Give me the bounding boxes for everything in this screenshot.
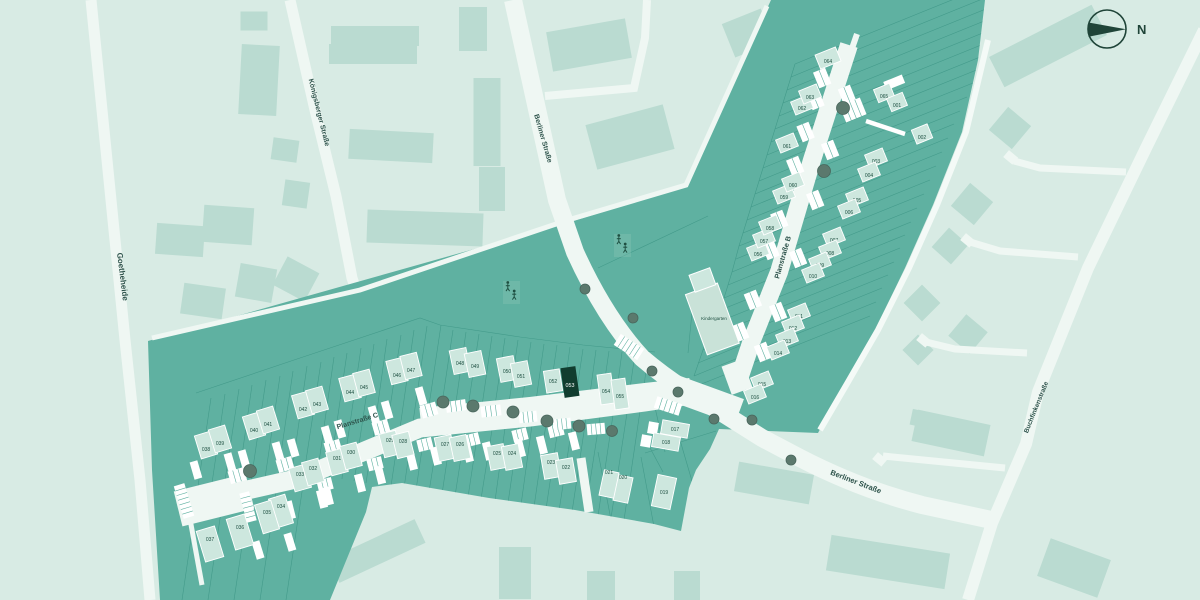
svg-text:042: 042 <box>299 407 308 413</box>
svg-text:022: 022 <box>562 465 571 471</box>
svg-text:014: 014 <box>774 351 783 357</box>
svg-text:027: 027 <box>441 442 450 448</box>
svg-text:046: 046 <box>393 373 402 379</box>
svg-text:020: 020 <box>619 475 628 481</box>
svg-text:053: 053 <box>566 383 575 389</box>
svg-text:028: 028 <box>399 439 408 445</box>
svg-text:043: 043 <box>313 402 322 408</box>
svg-text:025: 025 <box>493 451 502 457</box>
svg-text:039: 039 <box>216 441 225 447</box>
svg-text:023: 023 <box>547 460 556 466</box>
svg-text:045: 045 <box>360 385 369 391</box>
svg-text:038: 038 <box>202 447 211 453</box>
svg-text:026: 026 <box>456 442 465 448</box>
svg-text:Kindergarten: Kindergarten <box>701 316 727 321</box>
svg-text:047: 047 <box>407 368 416 374</box>
svg-text:057: 057 <box>760 239 769 245</box>
svg-text:063: 063 <box>806 95 815 101</box>
svg-text:054: 054 <box>602 389 611 395</box>
svg-text:058: 058 <box>766 226 775 232</box>
svg-text:037: 037 <box>206 537 215 543</box>
svg-text:030: 030 <box>347 450 356 456</box>
svg-text:061: 061 <box>783 144 792 150</box>
svg-text:010: 010 <box>809 274 818 280</box>
svg-text:N: N <box>1137 22 1146 37</box>
svg-text:006: 006 <box>845 210 854 216</box>
svg-text:035: 035 <box>263 510 272 516</box>
svg-text:051: 051 <box>517 374 526 380</box>
svg-text:049: 049 <box>471 364 480 370</box>
svg-text:052: 052 <box>549 379 558 385</box>
svg-text:031: 031 <box>333 456 342 462</box>
svg-text:059: 059 <box>780 195 789 201</box>
svg-text:060: 060 <box>789 183 798 189</box>
svg-text:041: 041 <box>264 422 273 428</box>
svg-text:017: 017 <box>671 427 680 433</box>
svg-text:034: 034 <box>277 504 286 510</box>
svg-text:040: 040 <box>250 428 259 434</box>
svg-text:004: 004 <box>865 173 874 179</box>
svg-text:018: 018 <box>662 440 671 446</box>
svg-text:056: 056 <box>754 252 763 258</box>
svg-text:019: 019 <box>660 490 669 496</box>
svg-text:024: 024 <box>508 451 517 457</box>
svg-text:055: 055 <box>616 394 625 400</box>
svg-text:062: 062 <box>798 106 807 112</box>
svg-text:050: 050 <box>503 369 512 375</box>
svg-text:036: 036 <box>236 525 245 531</box>
svg-text:064: 064 <box>824 59 833 65</box>
svg-text:033: 033 <box>296 472 305 478</box>
svg-text:044: 044 <box>346 390 355 396</box>
svg-text:048: 048 <box>456 361 465 367</box>
svg-text:032: 032 <box>309 466 318 472</box>
svg-text:021: 021 <box>605 470 614 476</box>
svg-text:016: 016 <box>751 395 760 401</box>
svg-text:001: 001 <box>893 103 902 109</box>
svg-text:002: 002 <box>918 135 927 141</box>
